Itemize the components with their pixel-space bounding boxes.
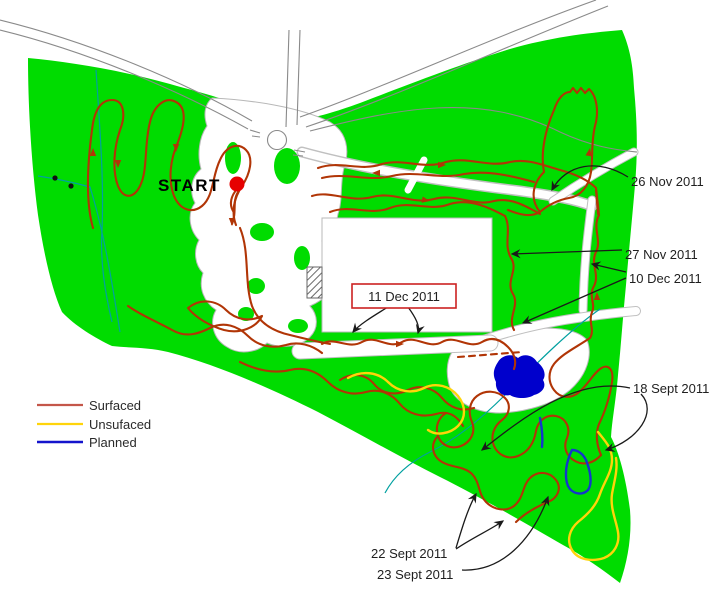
legend-label-unsurfaced: Unsufaced bbox=[89, 417, 151, 432]
legend: Surfaced Unsufaced Planned bbox=[37, 398, 151, 450]
annotation-27-nov: 27 Nov 2011 bbox=[625, 247, 698, 262]
trail-map: START 26 Nov 2011 27 Nov 2011 10 Dec 201… bbox=[0, 0, 725, 600]
stream-marker bbox=[68, 183, 73, 188]
annotation-23-sept: 23 Sept 2011 bbox=[377, 567, 453, 582]
green-island bbox=[250, 223, 274, 241]
map-canvas: START 26 Nov 2011 27 Nov 2011 10 Dec 201… bbox=[0, 0, 725, 600]
legend-label-planned: Planned bbox=[89, 435, 137, 450]
roundabout bbox=[268, 131, 287, 150]
green-island bbox=[288, 319, 308, 333]
annotation-26-nov: 26 Nov 2011 bbox=[631, 174, 704, 189]
annotation-10-dec: 10 Dec 2011 bbox=[629, 271, 702, 286]
annotation-22-sept: 22 Sept 2011 bbox=[371, 546, 447, 561]
green-island bbox=[294, 246, 310, 270]
stream-marker bbox=[52, 175, 57, 180]
annotation-18-sept: 18 Sept 2011 bbox=[633, 381, 709, 396]
legend-label-surfaced: Surfaced bbox=[89, 398, 141, 413]
field-rectangle bbox=[322, 218, 492, 332]
start-label: START bbox=[158, 176, 221, 195]
annotation-11-dec: 11 Dec 2011 bbox=[368, 289, 440, 304]
green-island bbox=[274, 148, 300, 184]
hatched-building bbox=[307, 267, 322, 298]
start-dot bbox=[230, 177, 245, 192]
